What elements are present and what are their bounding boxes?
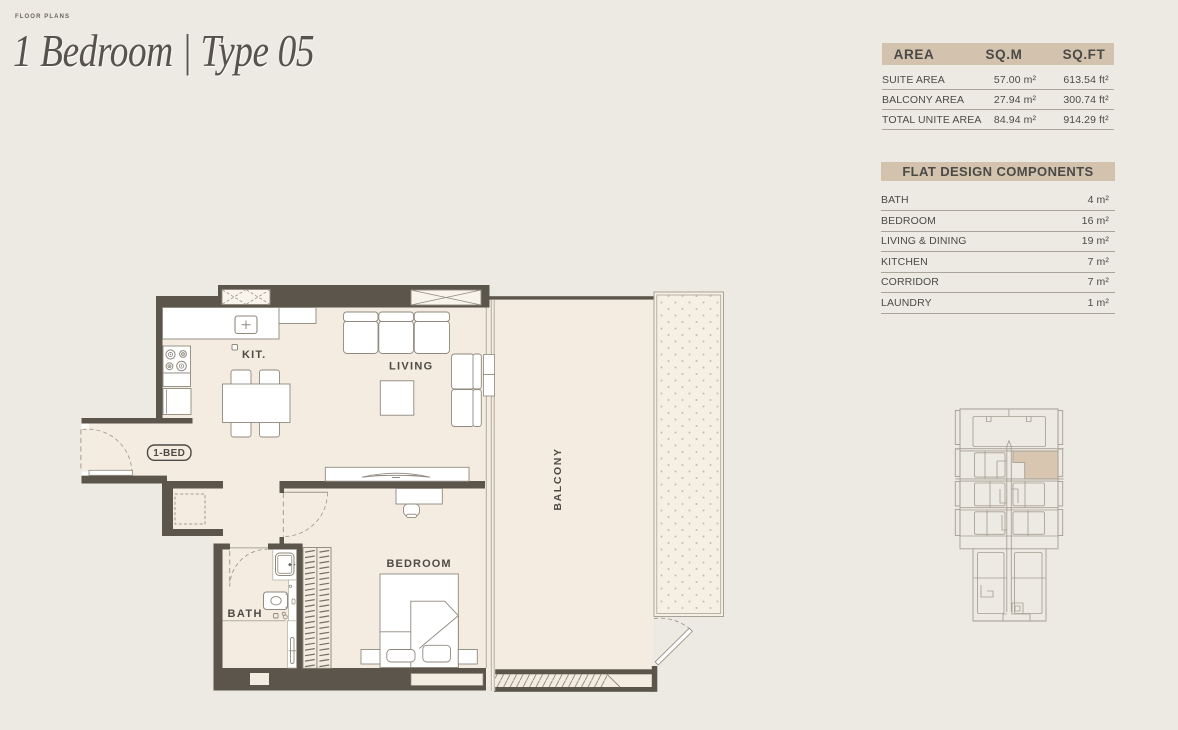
- svg-text:BALCONY: BALCONY: [552, 447, 564, 510]
- svg-text:BATH: BATH: [228, 608, 263, 620]
- svg-text:KIT.: KIT.: [242, 349, 266, 361]
- svg-text:BEDROOM: BEDROOM: [387, 558, 452, 570]
- svg-text:1-BED: 1-BED: [153, 448, 185, 459]
- svg-text:LIVING: LIVING: [389, 361, 433, 373]
